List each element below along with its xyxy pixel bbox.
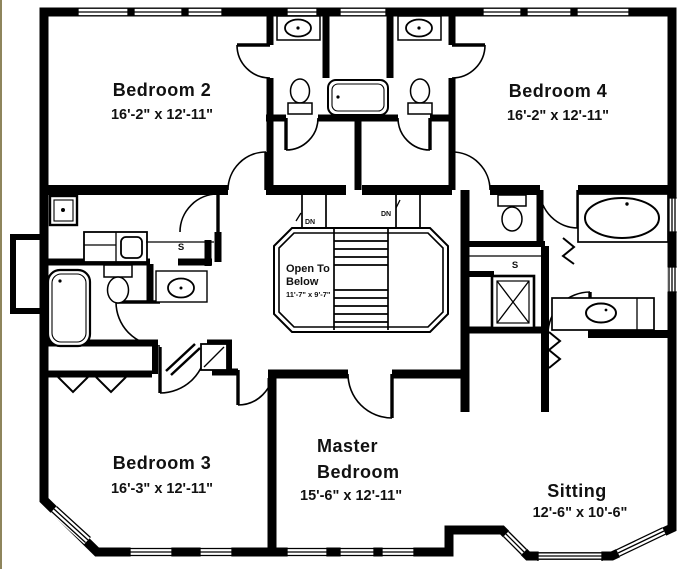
bedroom-2-name: Bedroom 2 xyxy=(113,80,212,100)
bedroom-4-dims: 16'-2" x 12'-11" xyxy=(507,108,609,124)
door-laundry xyxy=(180,194,218,232)
toilet-icon-master-bath xyxy=(498,195,526,231)
door-master-bath xyxy=(540,190,578,228)
angled-closet-door xyxy=(166,344,227,375)
master-bedroom-dims: 15'-6" x 12'-11" xyxy=(300,488,402,504)
bedroom-4-label: Bedroom 4 16'-2" x 12'-11" xyxy=(507,81,609,124)
toilet-icon-bath1 xyxy=(288,79,312,114)
sink-icon-bath1 xyxy=(277,16,320,40)
door-bedroom4 xyxy=(452,152,490,190)
open-to-below-line2: Below xyxy=(286,276,319,288)
door-bath1 xyxy=(237,45,270,78)
master-bedroom-label: Master Bedroom 15'-6" x 12'-11" xyxy=(300,436,402,504)
door-vestibule1 xyxy=(286,118,318,150)
bedroom-2-dims: 16'-2" x 12'-11" xyxy=(111,107,213,123)
bathtub-icon-hall-bath xyxy=(48,270,90,346)
washer-dryer-icon xyxy=(84,232,147,262)
windows-top-wall xyxy=(78,7,629,17)
floor-plan-drawing: Bedroom 2 16'-2" x 12'-11" Bedroom 4 16'… xyxy=(2,0,689,569)
bedroom-4-name: Bedroom 4 xyxy=(509,81,608,101)
door-hall-bath xyxy=(116,302,160,346)
chimney-bumpout xyxy=(13,237,44,311)
door-bath2 xyxy=(452,45,485,78)
bedroom-3-dims: 16'-3" x 12'-11" xyxy=(111,481,213,497)
stair-annotations: DN DN xyxy=(305,211,391,226)
utility-sink-icon xyxy=(50,196,77,225)
vanity-sink-icon-master-bath xyxy=(552,298,654,330)
stairs-down-label-left: DN xyxy=(305,219,315,226)
shower-icon-master-bath xyxy=(492,276,534,328)
master-bedroom-name-line2: Bedroom xyxy=(317,462,400,482)
sitting-room-name: Sitting xyxy=(547,481,607,501)
door-vestibule2 xyxy=(398,118,430,150)
sink-icon-bath2 xyxy=(398,16,441,40)
sitting-room-label: Sitting 12'-6" x 10'-6" xyxy=(533,481,628,521)
toilet-icon-hall-bath xyxy=(104,265,132,303)
open-to-below-line1: Open To xyxy=(286,263,330,275)
door-master-bedroom xyxy=(348,374,392,418)
bathtub-icon-shared xyxy=(328,80,388,115)
open-to-below-dims: 11'-7" x 9'-7" xyxy=(286,290,331,299)
toilet-icon-bath2 xyxy=(408,79,432,114)
shelf-label-master-closet: S xyxy=(512,260,518,271)
shelf-label-laundry: S xyxy=(178,242,184,253)
bedroom-3-label: Bedroom 3 16'-3" x 12'-11" xyxy=(111,453,213,497)
stairs-down-label-right: DN xyxy=(381,211,391,218)
sitting-room-dims: 12'-6" x 10'-6" xyxy=(533,505,628,521)
bedroom-3-name: Bedroom 3 xyxy=(113,453,212,473)
bifold-doors-bedroom3-closet xyxy=(58,377,126,392)
bedroom-2-label: Bedroom 2 16'-2" x 12'-11" xyxy=(111,80,213,123)
floor-plan-page: Bedroom 2 16'-2" x 12'-11" Bedroom 4 16'… xyxy=(0,0,689,569)
master-bedroom-name-line1: Master xyxy=(317,436,378,456)
door-bedroom2 xyxy=(228,152,266,190)
garden-tub-icon-master-bath xyxy=(578,194,668,242)
sink-icon-hall-bath xyxy=(156,271,207,302)
